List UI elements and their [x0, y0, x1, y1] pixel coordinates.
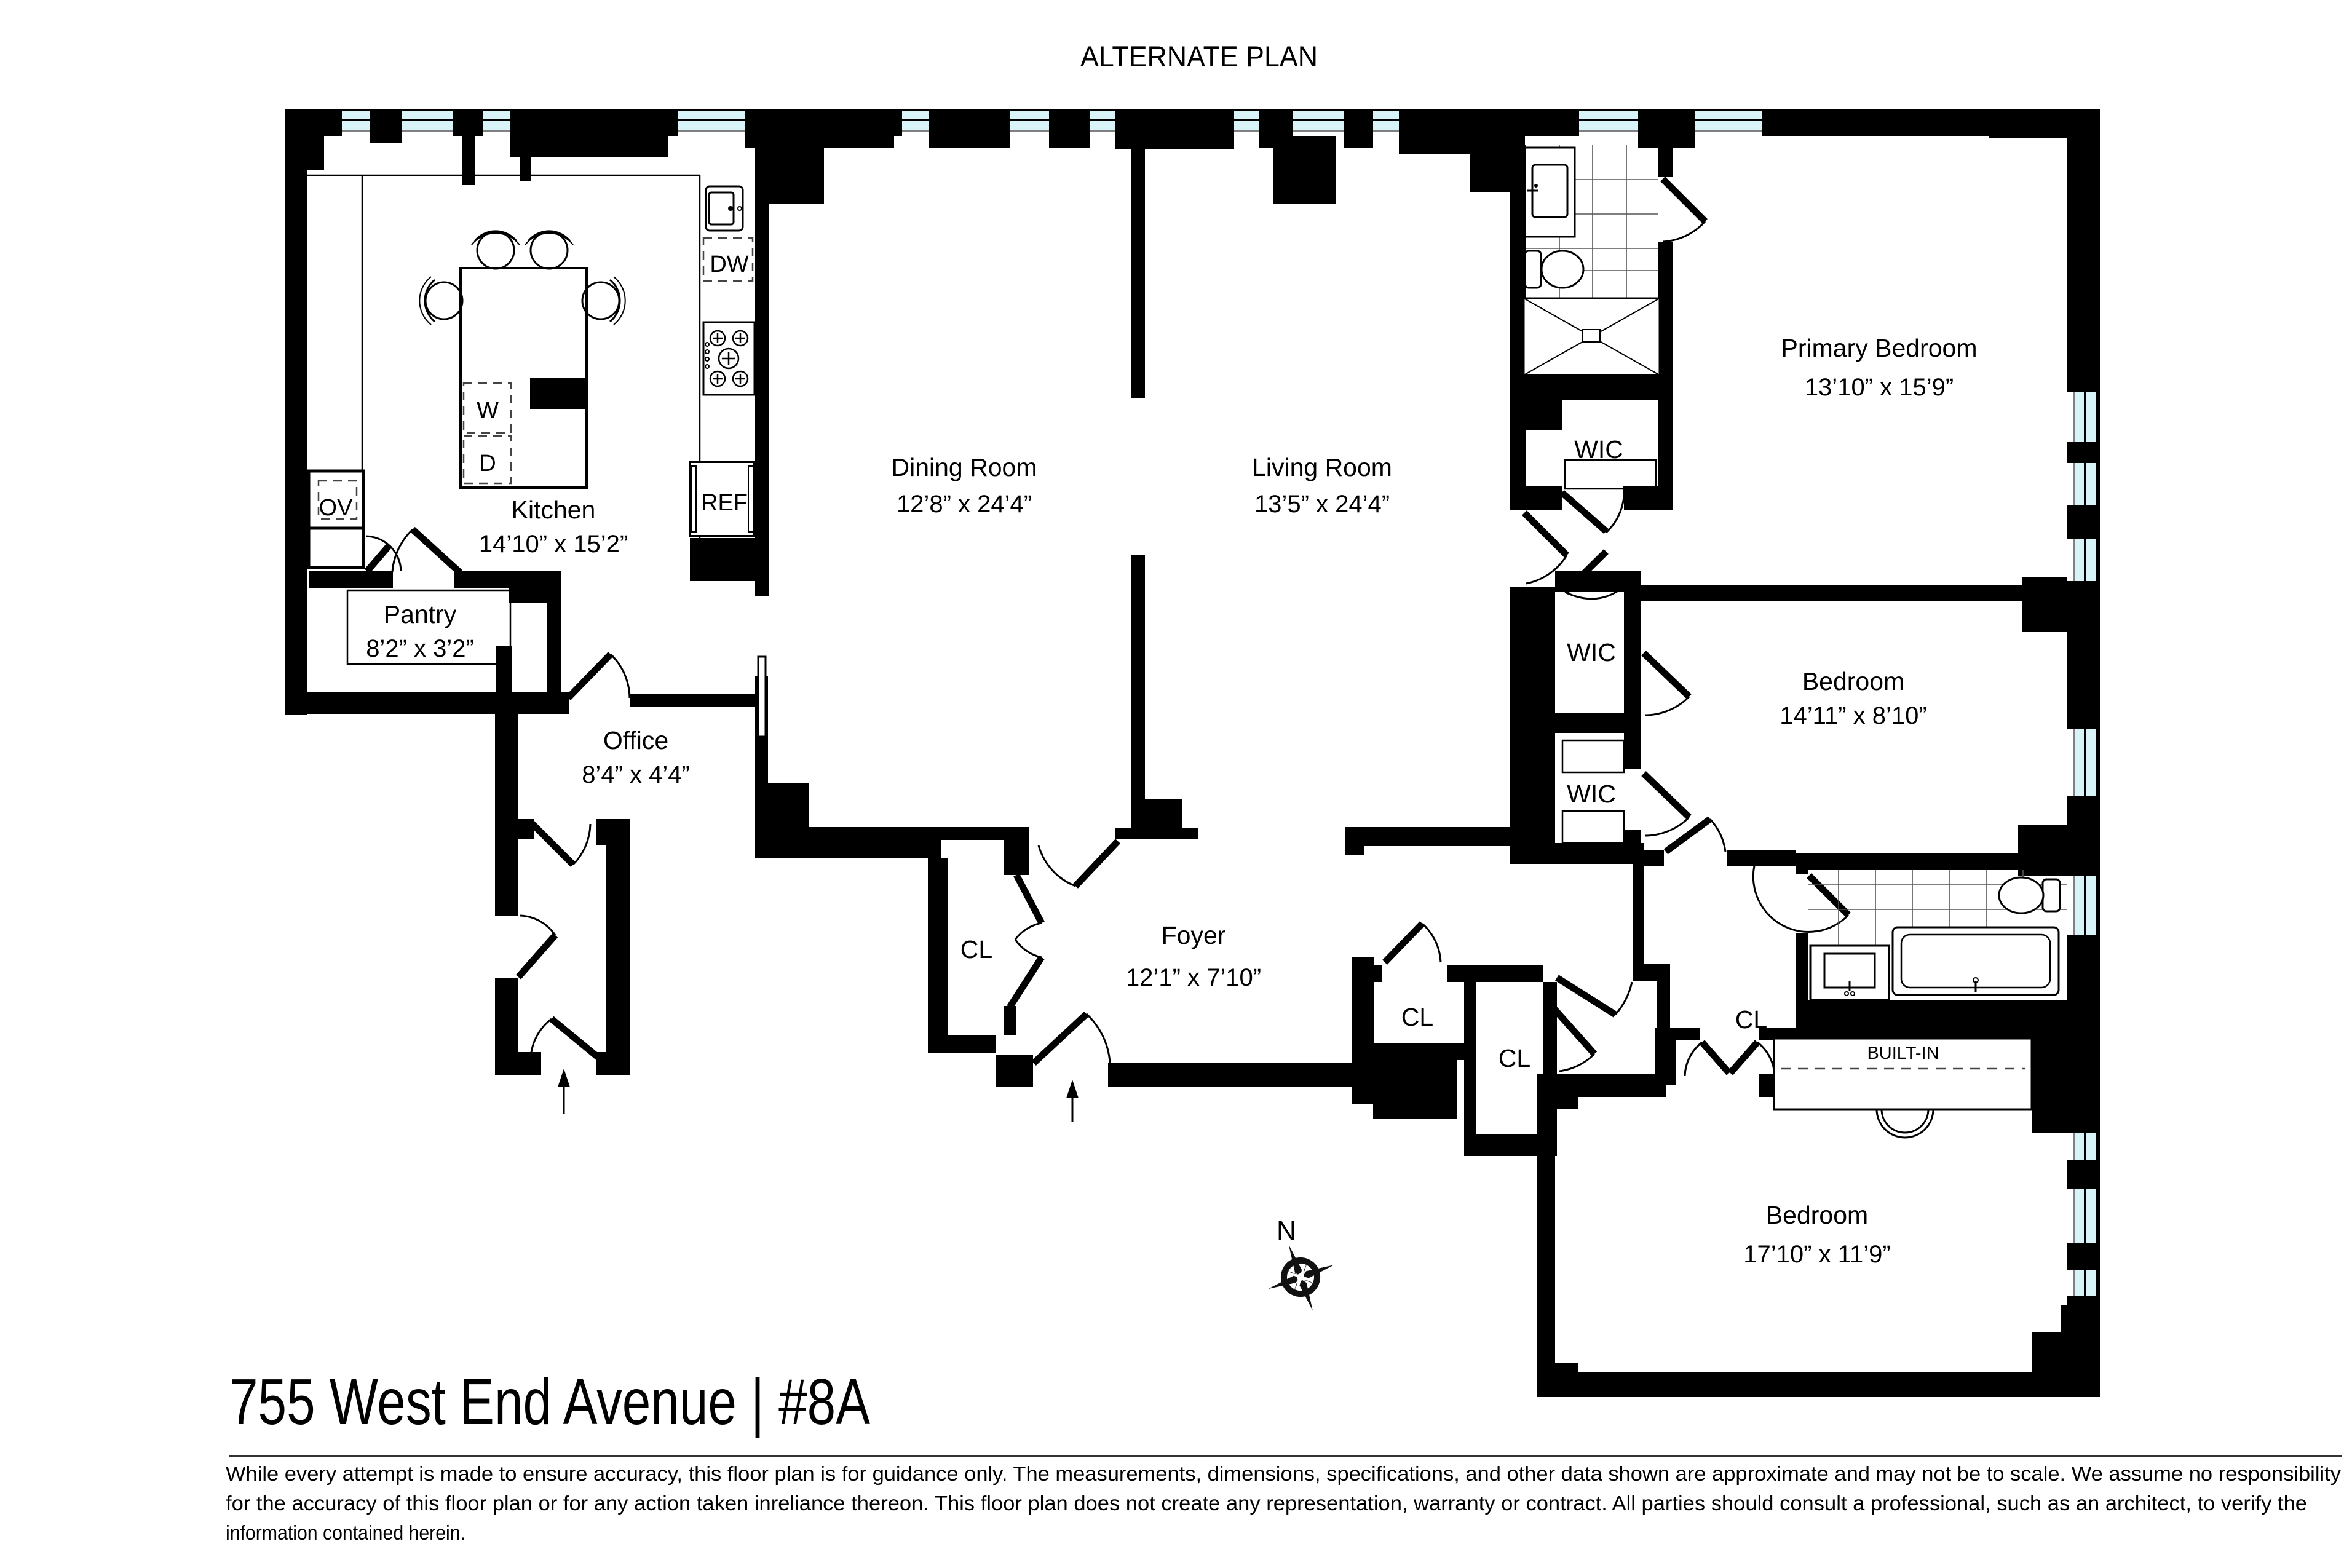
- svg-text:12’1” x 7’10”: 12’1” x 7’10”: [1126, 964, 1261, 991]
- svg-text:8’4” x 4’4”: 8’4” x 4’4”: [582, 761, 690, 788]
- svg-text:DW: DW: [710, 251, 748, 277]
- svg-text:13’5” x 24’4”: 13’5” x 24’4”: [1254, 491, 1390, 518]
- svg-text:While every attempt is made to: While every attempt is made to ensure ac…: [226, 1462, 2342, 1485]
- svg-text:WIC: WIC: [1567, 638, 1616, 667]
- svg-text:17’10” x 11’9”: 17’10” x 11’9”: [1743, 1241, 1890, 1268]
- svg-text:Bedroom: Bedroom: [1766, 1201, 1868, 1229]
- svg-text:W: W: [477, 398, 499, 424]
- svg-text:REF: REF: [701, 490, 748, 516]
- svg-text:BUILT-IN: BUILT-IN: [1867, 1043, 1939, 1063]
- svg-text:Office: Office: [603, 726, 668, 754]
- svg-text:Living Room: Living Room: [1252, 453, 1392, 481]
- svg-text:14’11” x 8’10”: 14’11” x 8’10”: [1780, 702, 1926, 729]
- svg-text:CL: CL: [1401, 1003, 1433, 1031]
- svg-text:Pantry: Pantry: [384, 600, 457, 628]
- svg-text:Primary Bedroom: Primary Bedroom: [1781, 334, 1978, 362]
- svg-text:WIC: WIC: [1567, 780, 1616, 808]
- svg-text:Dining Room: Dining Room: [892, 453, 1037, 481]
- svg-text:WIC: WIC: [1574, 435, 1623, 464]
- svg-text:for the accuracy of this floor: for the accuracy of this floor plan or f…: [226, 1492, 2307, 1515]
- svg-text:Bedroom: Bedroom: [1802, 667, 1904, 695]
- svg-text:D: D: [479, 451, 496, 477]
- svg-text:CL: CL: [960, 935, 992, 964]
- svg-text:N: N: [1277, 1216, 1296, 1246]
- svg-text:14’10” x 15’2”: 14’10” x 15’2”: [479, 531, 628, 558]
- svg-text:information contained herein.: information contained herein.: [226, 1521, 465, 1544]
- svg-text:CL: CL: [1499, 1044, 1530, 1072]
- svg-text:Kitchen: Kitchen: [512, 496, 596, 524]
- svg-text:CL: CL: [1735, 1005, 1767, 1034]
- svg-text:12’8” x 24’4”: 12’8” x 24’4”: [897, 491, 1032, 518]
- svg-text:ALTERNATE PLAN: ALTERNATE PLAN: [1080, 40, 1318, 73]
- svg-text:8’2” x 3’2”: 8’2” x 3’2”: [366, 635, 474, 662]
- svg-text:13’10” x 15’9”: 13’10” x 15’9”: [1805, 374, 1954, 401]
- svg-text:Foyer: Foyer: [1162, 921, 1226, 949]
- svg-text:755 West End Avenue | #8A: 755 West End Avenue | #8A: [229, 1366, 870, 1438]
- svg-text:OV: OV: [319, 495, 354, 521]
